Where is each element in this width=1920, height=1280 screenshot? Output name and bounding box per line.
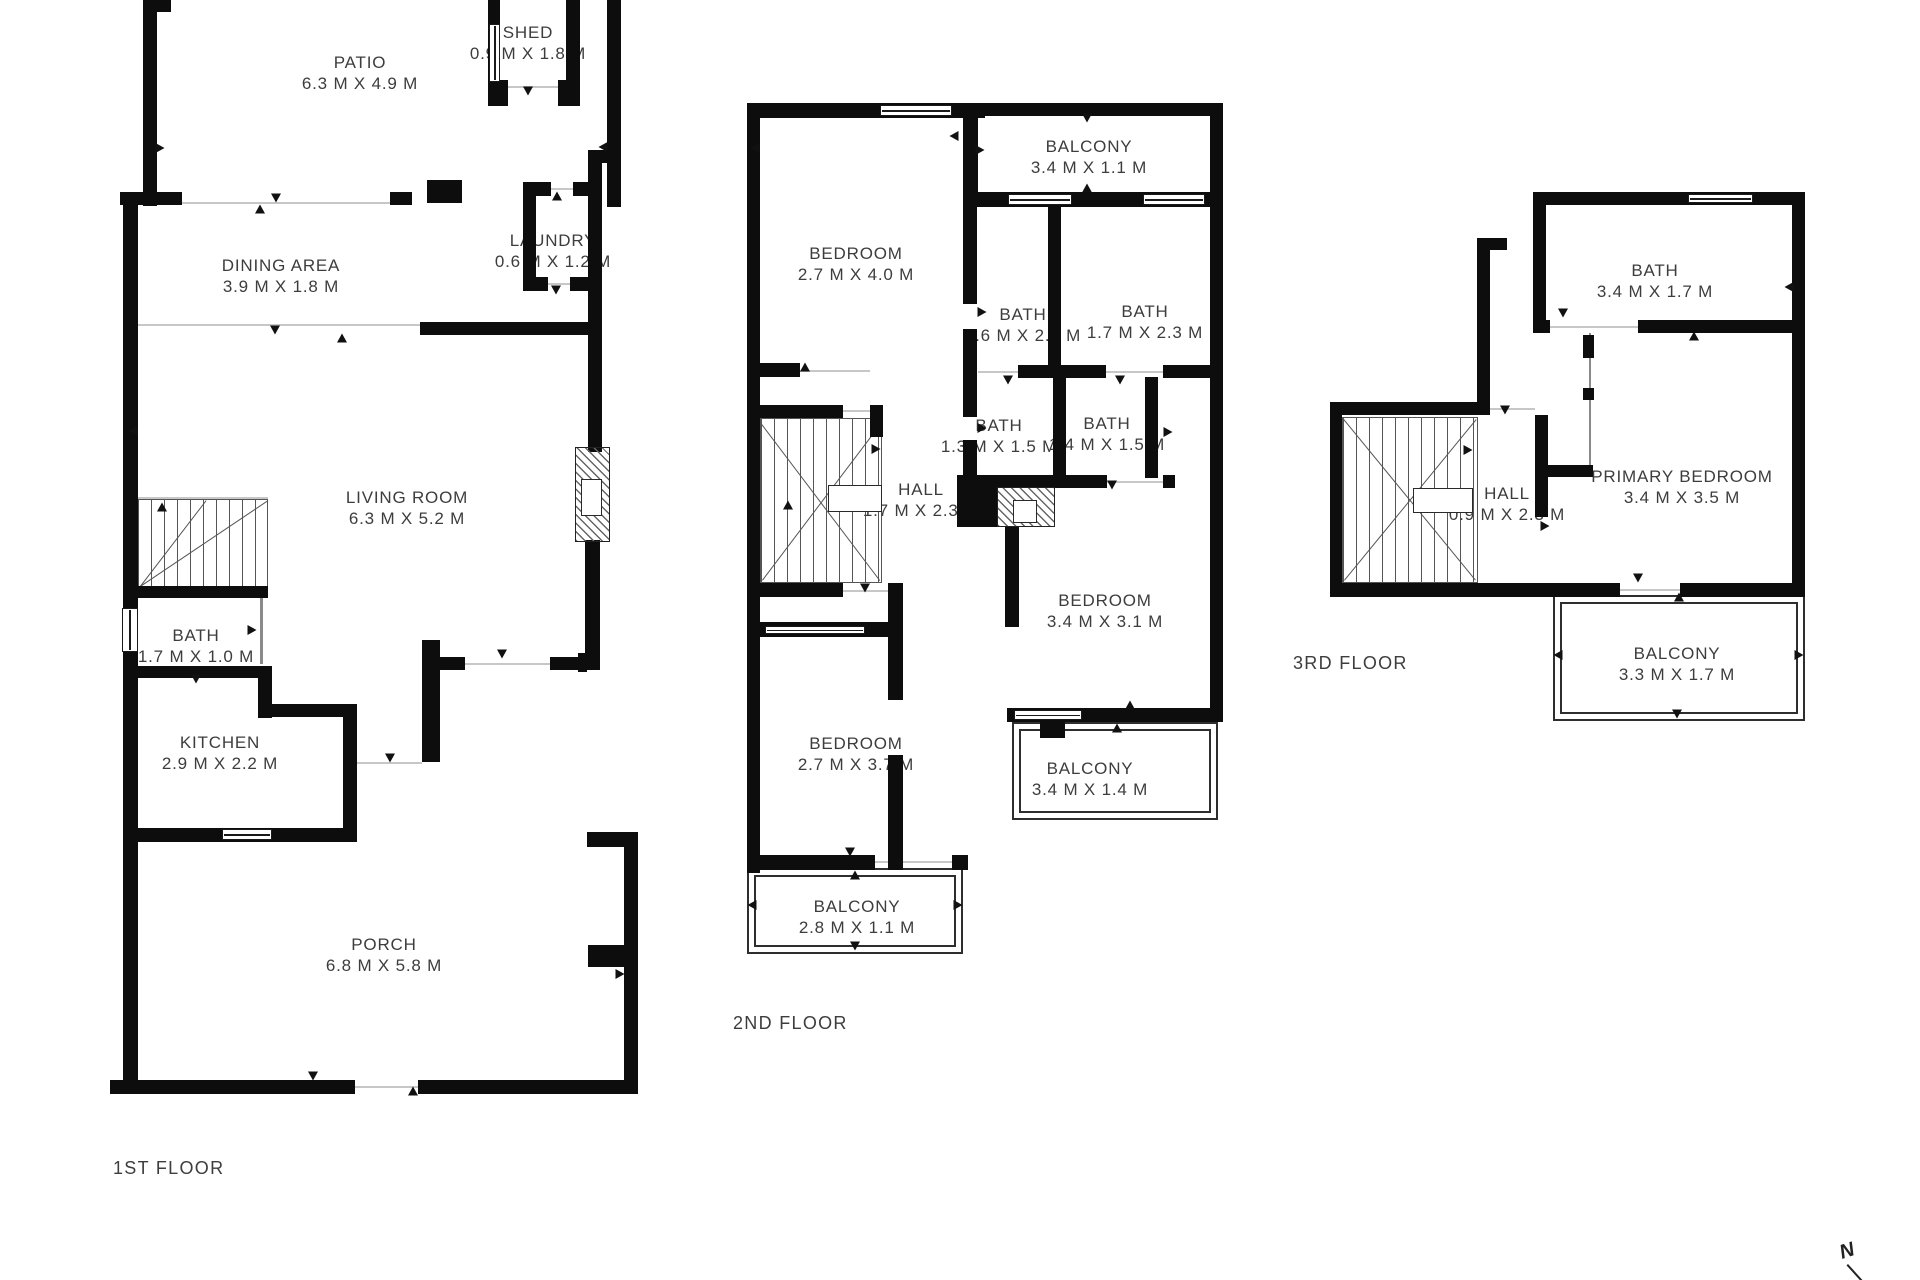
wall xyxy=(1583,388,1594,400)
thin-wall xyxy=(260,598,263,664)
door-arrow xyxy=(1674,593,1684,602)
room-dimensions: 3.4 M X 1.7 M xyxy=(1597,281,1713,302)
door-arrow xyxy=(1689,332,1699,341)
room-dimensions: 6.8 M X 5.8 M xyxy=(326,955,442,976)
door-arrow xyxy=(1500,406,1510,415)
room-dimensions: 2.9 M X 2.2 M xyxy=(162,753,278,774)
wall xyxy=(747,363,800,377)
door-arrow xyxy=(255,205,265,214)
wall xyxy=(143,0,157,206)
door-arrow xyxy=(191,675,201,684)
opening-line xyxy=(843,410,870,412)
wall xyxy=(418,1080,638,1094)
wall xyxy=(1543,465,1593,477)
room-dimensions: 1.7 M X 2.3 M xyxy=(1087,322,1203,343)
wall xyxy=(1330,583,1545,597)
room-label: KITCHEN2.9 M X 2.2 M xyxy=(162,732,278,774)
room-label: BATH3.4 M X 1.7 M xyxy=(1597,260,1713,302)
wall xyxy=(1533,192,1805,205)
room-label: PORCH6.8 M X 5.8 M xyxy=(326,934,442,976)
door-arrow xyxy=(385,754,395,763)
room-name: KITCHEN xyxy=(162,732,278,753)
room-name: BATH xyxy=(1087,301,1203,322)
wall xyxy=(1330,402,1488,415)
room-dimensions: 6.3 M X 5.2 M xyxy=(346,508,468,529)
wall xyxy=(1583,335,1594,358)
wall xyxy=(1680,583,1805,597)
wall xyxy=(143,0,171,12)
room-label: PATIO6.3 M X 4.9 M xyxy=(302,52,418,94)
room-dimensions: 3.9 M X 1.8 M xyxy=(222,276,340,297)
closet-box xyxy=(1413,488,1473,513)
room-name: BALCONY xyxy=(799,896,915,917)
room-name: LIVING ROOM xyxy=(346,487,468,508)
window xyxy=(1143,194,1205,205)
floor-plan: N PATIO6.3 M X 4.9 MSHED0.9 M X 1.8 MDIN… xyxy=(0,0,1920,1280)
room-name: BEDROOM xyxy=(798,243,914,264)
door-arrow xyxy=(1082,114,1092,123)
wall xyxy=(963,192,977,304)
opening-line xyxy=(875,861,952,863)
wall xyxy=(607,0,621,207)
opening-line xyxy=(978,371,1018,373)
wall xyxy=(135,586,268,598)
room-dimensions: 1.7 M X 1.0 M xyxy=(138,646,254,667)
door-arrow xyxy=(1795,650,1804,660)
north-indicator: N xyxy=(1837,1238,1858,1264)
opening-line xyxy=(138,497,268,499)
door-arrow xyxy=(552,192,562,201)
room-dimensions: 3.4 M X 1.1 M xyxy=(1031,157,1147,178)
room-label: BEDROOM3.4 M X 3.1 M xyxy=(1047,590,1163,632)
wall xyxy=(747,583,843,597)
opening-line xyxy=(150,202,412,204)
door-arrow xyxy=(1164,427,1173,437)
wall xyxy=(1477,238,1490,415)
wall xyxy=(952,855,968,870)
door-arrow xyxy=(270,326,280,335)
door-arrow xyxy=(551,286,561,295)
wall xyxy=(747,103,760,873)
door-arrow xyxy=(950,131,959,141)
opening-line xyxy=(1620,589,1680,591)
room-label: BALCONY3.4 M X 1.4 M xyxy=(1032,758,1148,800)
door-arrow xyxy=(129,426,138,436)
wall xyxy=(422,640,440,762)
room-label: PRIMARY BEDROOM3.4 M X 3.5 M xyxy=(1591,466,1772,508)
wall xyxy=(1533,320,1550,333)
door-arrow xyxy=(850,942,860,951)
opening-line xyxy=(1550,326,1638,328)
wall xyxy=(870,405,883,437)
door-arrow xyxy=(308,1072,318,1081)
door-arrow xyxy=(1082,184,1092,193)
room-dimensions: 6.3 M X 4.9 M xyxy=(302,73,418,94)
wall xyxy=(523,277,548,291)
room-dimensions: 3.4 M X 3.5 M xyxy=(1591,487,1772,508)
wall xyxy=(963,329,977,417)
room-dimensions: 2.7 M X 4.0 M xyxy=(798,264,914,285)
room-dimensions: 2.8 M X 1.1 M xyxy=(799,917,915,938)
door-arrow xyxy=(850,871,860,880)
room-label: BALCONY3.3 M X 1.7 M xyxy=(1619,643,1735,685)
wall xyxy=(985,103,1223,116)
room-dimensions: 3.3 M X 1.7 M xyxy=(1619,664,1735,685)
wall xyxy=(888,755,903,870)
door-arrow xyxy=(271,194,281,203)
opening-line xyxy=(507,86,560,88)
wall xyxy=(1053,377,1066,478)
door-arrow xyxy=(1633,574,1643,583)
window xyxy=(489,24,500,82)
room-dimensions: 3.4 M X 3.1 M xyxy=(1047,611,1163,632)
wall xyxy=(1005,527,1019,627)
room-dimensions: 3.4 M X 1.4 M xyxy=(1032,779,1148,800)
door-arrow xyxy=(1672,710,1682,719)
closet-box xyxy=(1013,500,1037,523)
door-arrow xyxy=(1558,309,1568,318)
wall xyxy=(1040,722,1065,738)
room-label: BATH1.7 M X 2.3 M xyxy=(1087,301,1203,343)
room-name: PORCH xyxy=(326,934,442,955)
window xyxy=(122,608,138,652)
wall xyxy=(420,322,590,335)
room-label: BALCONY3.4 M X 1.1 M xyxy=(1031,136,1147,178)
room-name: PATIO xyxy=(302,52,418,73)
room-name: BATH xyxy=(138,625,254,646)
room-label: BEDROOM2.7 M X 4.0 M xyxy=(798,243,914,285)
wall xyxy=(1145,377,1158,478)
room-label: BATH1.3 M X 1.5 M xyxy=(941,415,1057,457)
room-label: LIVING ROOM6.3 M X 5.2 M xyxy=(346,487,468,529)
wall xyxy=(578,653,587,672)
room-label: BALCONY2.8 M X 1.1 M xyxy=(799,896,915,938)
door-arrow xyxy=(616,969,625,979)
door-arrow xyxy=(1541,521,1550,531)
wall xyxy=(110,1080,355,1094)
room-dimensions: 1.3 M X 1.5 M xyxy=(941,436,1057,457)
door-arrow xyxy=(751,143,760,153)
door-arrow xyxy=(1554,650,1563,660)
door-arrow xyxy=(248,625,257,635)
room-name: BALCONY xyxy=(1619,643,1735,664)
door-arrow xyxy=(845,848,855,857)
wall xyxy=(747,405,843,418)
wall xyxy=(747,855,875,870)
door-arrow xyxy=(800,363,810,372)
window xyxy=(222,829,272,840)
door-arrow xyxy=(408,1087,418,1096)
wall xyxy=(888,583,903,700)
floor-label: 3RD FLOOR xyxy=(1293,653,1408,674)
door-arrow xyxy=(872,444,881,454)
door-arrow xyxy=(337,334,347,343)
opening-line xyxy=(1106,371,1163,373)
wall xyxy=(1543,583,1620,597)
room-dimensions: 1.6 M X 2.3 M xyxy=(965,325,1081,346)
wall xyxy=(1163,475,1175,488)
door-arrow xyxy=(978,423,987,433)
door-arrow xyxy=(599,142,608,152)
wall xyxy=(427,180,462,203)
wall xyxy=(1792,192,1805,595)
door-arrow xyxy=(954,900,963,910)
door-arrow xyxy=(976,145,985,155)
opening-line xyxy=(1488,408,1535,410)
door-arrow xyxy=(1003,376,1013,385)
wall xyxy=(1638,320,1805,333)
room-name: BEDROOM xyxy=(1047,590,1163,611)
wall xyxy=(523,182,536,291)
door-arrow xyxy=(860,584,870,593)
wall xyxy=(1163,365,1213,378)
wall xyxy=(585,540,600,670)
window xyxy=(1014,710,1082,720)
floor-label: 2ND FLOOR xyxy=(733,1013,848,1034)
window xyxy=(765,626,865,634)
opening-line xyxy=(138,324,422,326)
room-name: PRIMARY BEDROOM xyxy=(1591,466,1772,487)
opening-line xyxy=(800,370,870,372)
closet-box xyxy=(828,485,882,512)
door-arrow xyxy=(523,87,533,96)
wall xyxy=(558,80,580,106)
door-arrow xyxy=(497,650,507,659)
door-arrow xyxy=(783,501,793,510)
wall xyxy=(957,480,997,527)
opening-line xyxy=(548,188,575,190)
wall xyxy=(440,657,465,670)
door-arrow xyxy=(1115,376,1125,385)
door-arrow xyxy=(748,900,757,910)
door-arrow xyxy=(1107,481,1117,490)
door-arrow xyxy=(1125,701,1135,710)
window xyxy=(1688,194,1753,203)
room-name: BEDROOM xyxy=(798,733,914,754)
wall xyxy=(390,192,412,205)
wall xyxy=(343,704,357,830)
room-name: BALCONY xyxy=(1031,136,1147,157)
window xyxy=(880,105,952,116)
wall xyxy=(1210,207,1223,722)
room-label: DINING AREA3.9 M X 1.8 M xyxy=(222,255,340,297)
door-arrow xyxy=(978,307,987,317)
door-arrow xyxy=(1785,282,1794,292)
door-arrow xyxy=(1112,724,1122,733)
room-name: DINING AREA xyxy=(222,255,340,276)
room-label: BATH1.7 M X 1.0 M xyxy=(138,625,254,667)
door-arrow xyxy=(1464,445,1473,455)
wall xyxy=(1048,207,1061,367)
wall xyxy=(1330,402,1342,595)
room-name: BALCONY xyxy=(1032,758,1148,779)
room-name: BATH xyxy=(1597,260,1713,281)
wall xyxy=(588,150,602,452)
opening-line xyxy=(465,663,550,665)
door-arrow xyxy=(157,503,167,512)
north-arrow-line xyxy=(1847,1264,1879,1280)
room-name: BATH xyxy=(941,415,1057,436)
floor-label: 1ST FLOOR xyxy=(113,1158,224,1179)
wall xyxy=(588,945,627,967)
door-arrow xyxy=(156,143,165,153)
wall xyxy=(1533,192,1546,333)
window xyxy=(1008,194,1072,205)
closet-box xyxy=(581,479,602,516)
wall xyxy=(488,80,508,106)
